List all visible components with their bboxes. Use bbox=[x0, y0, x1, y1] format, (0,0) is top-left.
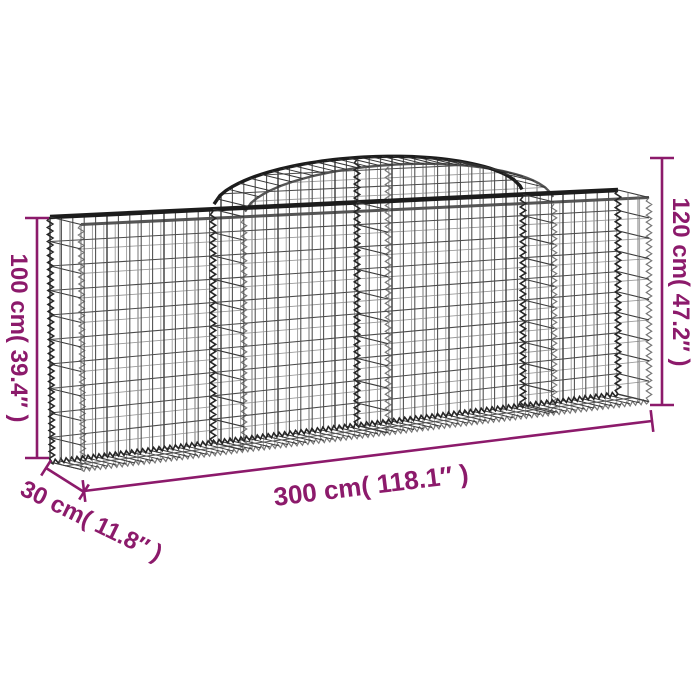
arch-tie-wire bbox=[261, 174, 292, 182]
divider-tie-wire bbox=[523, 342, 554, 350]
divider-tie-wire bbox=[618, 333, 649, 341]
divider-tie-wire bbox=[50, 364, 81, 372]
mesh-horizontal-wire bbox=[81, 259, 649, 298]
divider-tie-wire bbox=[523, 258, 554, 266]
divider-tie-wire bbox=[523, 279, 554, 287]
divider-tie-wire bbox=[523, 216, 554, 224]
dimension-cap bbox=[41, 460, 51, 475]
divider-tie-wire bbox=[523, 321, 554, 329]
divider-tie-wire bbox=[357, 336, 388, 344]
divider-tie-wire bbox=[523, 384, 554, 392]
divider-tie-wire bbox=[357, 247, 388, 255]
product-dimension-diagram: 100 cm( 39.4″ ) 120 cm( 47.2″ ) 300 cm( … bbox=[0, 0, 700, 700]
divider-tie-wire bbox=[357, 225, 388, 233]
arch-tie-wire bbox=[250, 178, 281, 186]
height-right-label: 120 cm( 47.2″ ) bbox=[667, 198, 694, 367]
divider-tie-wire bbox=[523, 237, 554, 245]
divider-tie-wire bbox=[357, 292, 388, 300]
divider-tie-wire bbox=[50, 266, 81, 274]
divider-tie-wire bbox=[357, 358, 388, 366]
dimension-cap bbox=[651, 410, 654, 432]
arch-tie-wire bbox=[360, 157, 391, 165]
divider-tie-wire bbox=[618, 251, 649, 259]
divider-tie-wire bbox=[50, 291, 81, 299]
divider-tie-wire bbox=[357, 381, 388, 389]
mesh-horizontal-wire bbox=[50, 333, 618, 389]
divider-tie-wire bbox=[357, 269, 388, 277]
arch-tie-wire bbox=[349, 158, 380, 166]
mesh-horizontal-wire bbox=[50, 312, 618, 364]
mesh-horizontal-wire bbox=[81, 218, 649, 249]
divider-tie-wire bbox=[50, 242, 81, 250]
arch-tie-wire bbox=[327, 160, 358, 168]
bottom-mid-wire bbox=[66, 398, 634, 466]
mesh-horizontal-wire bbox=[50, 272, 618, 315]
divider-tie-wire bbox=[357, 403, 388, 411]
dimension-annotations: 100 cm( 39.4″ ) 120 cm( 47.2″ ) 300 cm( … bbox=[5, 158, 694, 567]
arch-tie-wire bbox=[316, 162, 347, 170]
divider-tie-wire bbox=[618, 353, 649, 361]
arch-tie-wire bbox=[338, 159, 369, 167]
divider-tie-wire bbox=[50, 462, 81, 470]
mesh-horizontal-wire bbox=[81, 320, 649, 372]
divider-tie-wire bbox=[618, 292, 649, 300]
divider-tie-wire bbox=[618, 231, 649, 239]
divider-tie-wire bbox=[523, 363, 554, 371]
divider-tie-wire bbox=[523, 300, 554, 308]
divider-spiral bbox=[385, 167, 390, 433]
divider-tie-wire bbox=[618, 394, 649, 402]
divider-tie-wire bbox=[618, 312, 649, 320]
mesh-horizontal-wire bbox=[50, 292, 618, 340]
height-left-label: 100 cm( 39.4″ ) bbox=[5, 254, 32, 423]
width-label: 300 cm( 118.1″ ) bbox=[272, 458, 470, 512]
mesh-horizontal-wire bbox=[81, 340, 649, 396]
divider-tie-wire bbox=[50, 315, 81, 323]
mesh-horizontal-wire bbox=[50, 251, 618, 290]
divider-tie-wire bbox=[618, 210, 649, 218]
divider-tie-wire bbox=[618, 272, 649, 280]
divider-tie-wire bbox=[618, 190, 649, 198]
divider-tie-wire bbox=[357, 314, 388, 322]
gabion-diagram-canvas: 100 cm( 39.4″ ) 120 cm( 47.2″ ) 300 cm( … bbox=[0, 0, 700, 700]
divider-tie-wire bbox=[618, 374, 649, 382]
